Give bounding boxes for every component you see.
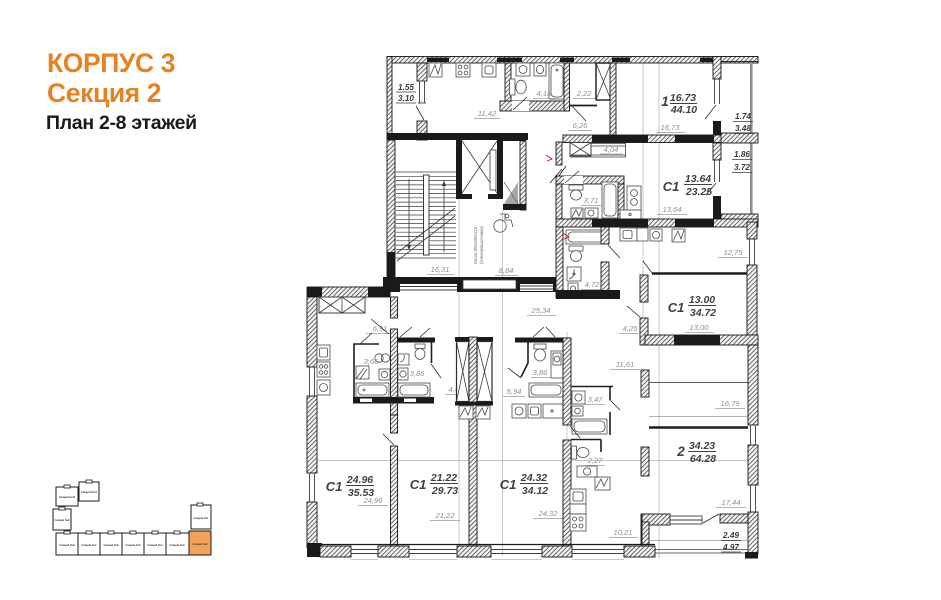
svg-text:С1: С1 <box>663 179 680 194</box>
svg-text:Секция №1: Секция №1 <box>194 516 209 520</box>
svg-text:(электрощитовая): (электрощитовая) <box>479 226 484 264</box>
svg-text:24,32: 24,32 <box>537 509 558 518</box>
svg-text:1.74: 1.74 <box>735 112 751 121</box>
svg-text:16,79: 16,79 <box>720 399 740 408</box>
svg-text:4,18: 4,18 <box>537 89 553 98</box>
svg-text:3,47: 3,47 <box>588 395 604 404</box>
svg-text:Секция №5: Секция №5 <box>126 543 141 547</box>
svg-text:Секция №8: Секция №8 <box>60 543 75 547</box>
svg-text:12,75: 12,75 <box>723 248 743 257</box>
svg-text:С1: С1 <box>326 479 343 494</box>
svg-text:План 2-8 этажей: План 2-8 этажей <box>46 112 197 134</box>
svg-text:Секция №3: Секция №3 <box>170 543 185 547</box>
svg-text:24.32: 24.32 <box>520 472 547 484</box>
svg-text:2,22: 2,22 <box>576 89 593 98</box>
svg-text:1: 1 <box>661 94 669 109</box>
svg-text:10,21: 10,21 <box>613 528 632 537</box>
svg-text:4.97: 4.97 <box>722 543 739 552</box>
svg-text:13.00: 13.00 <box>689 294 715 306</box>
svg-text:Секция №10: Секция №10 <box>59 495 76 499</box>
svg-text:Ниша 900х950х110: Ниша 900х950х110 <box>473 226 478 264</box>
svg-text:29.73: 29.73 <box>431 485 458 497</box>
svg-text:21,22: 21,22 <box>434 511 455 520</box>
svg-text:16,31: 16,31 <box>430 265 449 274</box>
svg-text:17,44: 17,44 <box>721 498 740 507</box>
svg-text:16,73: 16,73 <box>660 123 680 132</box>
svg-text:С1: С1 <box>668 300 685 315</box>
svg-text:16.73: 16.73 <box>670 92 696 104</box>
svg-text:3.72: 3.72 <box>734 163 750 172</box>
svg-text:2.49: 2.49 <box>722 531 739 540</box>
svg-text:3,86: 3,86 <box>533 368 549 377</box>
svg-text:Секция №9: Секция №9 <box>55 518 70 522</box>
svg-text:4,72: 4,72 <box>585 280 601 289</box>
svg-text:4,25: 4,25 <box>623 324 639 333</box>
svg-text:2,27: 2,27 <box>587 456 604 465</box>
svg-text:Секция №7: Секция №7 <box>82 543 97 547</box>
svg-text:21.22: 21.22 <box>430 472 457 484</box>
svg-text:34.72: 34.72 <box>690 307 716 319</box>
svg-text:25,34: 25,34 <box>530 306 550 315</box>
svg-text:34.23: 34.23 <box>689 440 715 452</box>
svg-text:2: 2 <box>676 444 685 459</box>
svg-text:Секция №4: Секция №4 <box>148 543 163 547</box>
svg-text:1.86: 1.86 <box>734 150 750 159</box>
svg-text:13,64: 13,64 <box>662 205 681 214</box>
svg-text:Секция 2: Секция 2 <box>47 78 161 108</box>
svg-text:13,00: 13,00 <box>689 323 709 332</box>
svg-text:Секция №6: Секция №6 <box>104 543 119 547</box>
svg-text:С1: С1 <box>500 477 517 492</box>
svg-text:3.10: 3.10 <box>398 94 414 103</box>
svg-text:44.10: 44.10 <box>670 104 697 116</box>
svg-text:24,96: 24,96 <box>362 496 383 505</box>
svg-text:11,42: 11,42 <box>478 109 497 118</box>
svg-text:13.64: 13.64 <box>685 173 711 185</box>
svg-text:КОРПУС 3: КОРПУС 3 <box>47 48 175 78</box>
svg-text:С1: С1 <box>410 477 427 492</box>
svg-text:1.55: 1.55 <box>398 83 414 92</box>
svg-text:34.12: 34.12 <box>522 485 548 497</box>
svg-text:24.96: 24.96 <box>346 474 373 486</box>
svg-text:3,86: 3,86 <box>410 369 426 378</box>
svg-text:3,66: 3,66 <box>364 357 380 366</box>
svg-text:8,84: 8,84 <box>499 266 514 275</box>
svg-text:3,71: 3,71 <box>584 196 599 205</box>
svg-text:5,94: 5,94 <box>507 387 522 396</box>
svg-text:11,61: 11,61 <box>616 360 634 369</box>
svg-text:6,91: 6,91 <box>373 324 388 333</box>
svg-text:Секция №2: Секция №2 <box>193 542 208 546</box>
svg-text:4,04: 4,04 <box>604 145 619 154</box>
svg-text:Секция №11: Секция №11 <box>81 490 98 494</box>
svg-text:23.25: 23.25 <box>685 186 712 198</box>
svg-text:6,26: 6,26 <box>573 121 589 130</box>
svg-text:3.48: 3.48 <box>735 124 751 133</box>
svg-text:64.28: 64.28 <box>690 453 716 465</box>
